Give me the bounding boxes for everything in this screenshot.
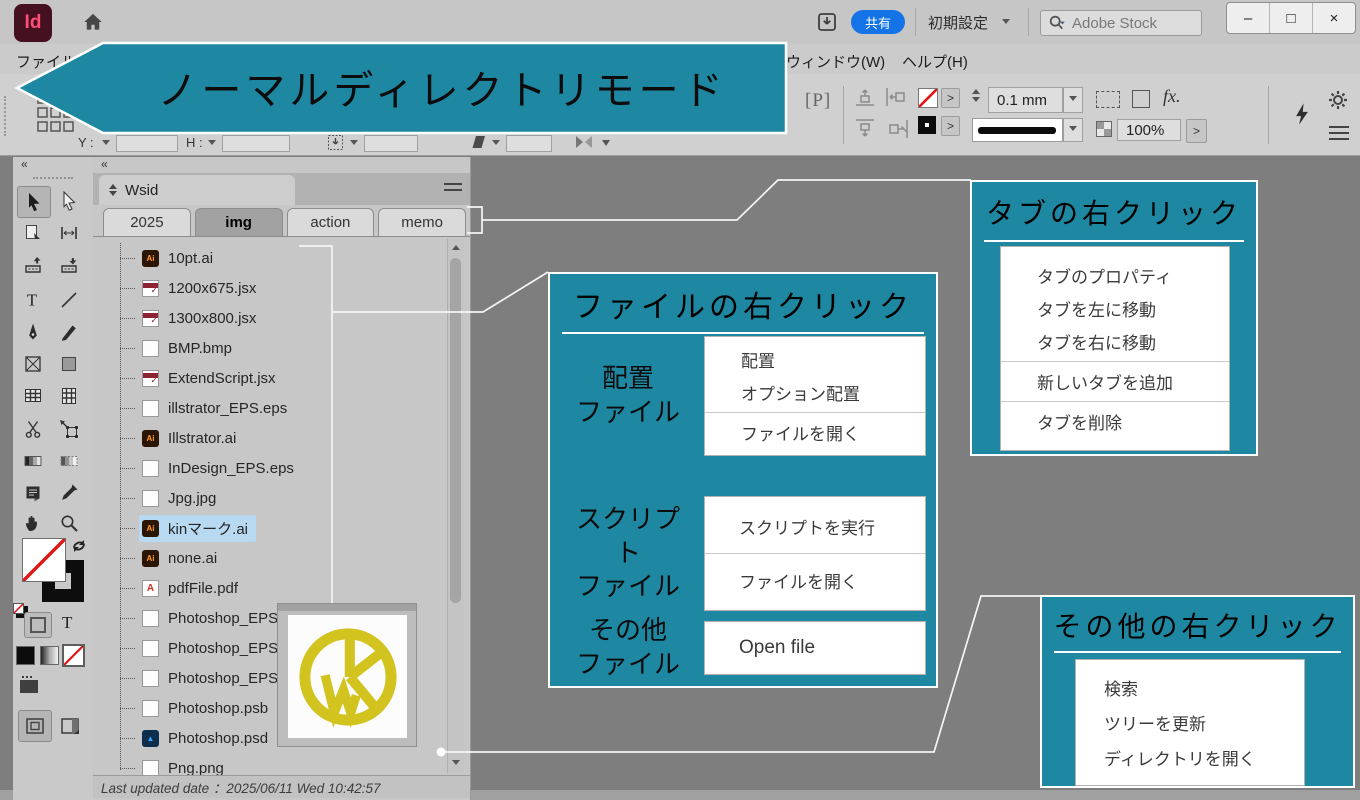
tree-tick [120,378,135,379]
context-menu: タブのプロパティタブを左に移動タブを右に移動新しいタブを追加タブを削除 [1000,246,1230,451]
export-options-icon[interactable] [20,680,38,693]
file-name: Photoshop_EPS.e [168,670,291,687]
file-row[interactable]: InDesign_EPS.eps [120,453,447,483]
note-tool-icon [22,482,44,504]
file-name: Illstrator.ai [168,430,236,447]
stroke-weight-dropdown[interactable] [1063,87,1083,113]
gap-tool[interactable] [53,218,85,248]
doc-file-icon [142,490,159,507]
panel-menu-icon[interactable] [444,183,462,195]
direct-selection-tool[interactable] [53,186,85,216]
zoom-tool[interactable] [53,508,85,538]
panel-title: Wsid [125,182,158,199]
stroke-style-dropdown[interactable] [1063,118,1083,142]
apply-none-button[interactable] [62,644,85,667]
type-tool-icon: T [22,289,44,311]
file-row[interactable]: illstrator_EPS.eps [120,393,447,423]
table-row-tool[interactable] [17,381,49,411]
file-row[interactable]: Ai10pt.ai [120,243,447,273]
doc-file-icon [142,760,159,776]
tree-tick [120,348,135,349]
file-row[interactable]: Aikinマーク.ai [120,513,447,543]
frame-tool-icon [22,353,44,375]
tree-tick [120,738,135,739]
minimize-button[interactable]: – [1227,3,1269,33]
free-transform-tool-icon [58,418,80,440]
callout-title: その他の右クリック [1042,597,1353,645]
callout-title: タブの右クリック [972,182,1256,232]
file-row[interactable]: ApdfFile.pdf [120,573,447,603]
table-column-tool[interactable] [53,381,85,411]
adobe-stock-search-input[interactable]: Adobe Stock [1040,10,1202,36]
gap-tool-icon [58,222,80,244]
panel-tab-bar: Wsid [93,173,470,205]
lightning-icon[interactable] [1294,96,1310,132]
panel-menu-icon[interactable] [1329,126,1349,140]
menu-separator [1001,401,1229,402]
file-name: none.ai [168,550,217,567]
last-updated-text: Last updated date ：2025/06/11 Wed 10:42:… [101,777,380,797]
mode-banner: ノーマルディレクトリモード [0,36,800,140]
context-menu-item: タブのプロパティ [1001,259,1229,292]
context-menu-item: タブを削除 [1001,405,1229,438]
formatting-affects-text-button[interactable]: T [62,613,72,633]
file-name: 10pt.ai [168,250,213,267]
context-menu-item: オプション配置 [705,376,925,409]
file-name: Png.png [168,760,224,776]
file-row[interactable]: ✓1200x675.jsx [120,273,447,303]
opacity-field[interactable]: 100% [1117,119,1181,141]
gear-icon[interactable] [1327,89,1349,111]
title-underline [984,240,1244,242]
file-name: pdfFile.pdf [168,580,238,597]
divider [915,8,916,36]
file-name: ExtendScript.jsx [168,370,276,387]
context-menu-item: 配置 [705,343,925,376]
palette-drag-handle[interactable] [33,177,73,179]
context-menu-item: スクリプトを実行 [705,503,925,550]
selection-tool[interactable] [17,186,51,218]
home-icon [81,10,105,34]
paragraph-style-button[interactable]: [P] [805,90,831,112]
context-menu-item: タブを左に移動 [1001,292,1229,325]
file-name: kinマーク.ai [168,518,248,539]
ai-file-icon: Ai [142,520,159,537]
hand-tool-icon [22,512,44,534]
window-controls: – □ × [1226,2,1356,34]
scissors-tool[interactable] [17,414,49,444]
frame-tool[interactable] [17,349,49,379]
context-menu-item: 新しいタブを追加 [1001,365,1229,398]
jsx-file-icon: ✓ [142,310,159,327]
content-collector-tool[interactable] [17,250,49,280]
type-tool[interactable]: T [17,285,49,315]
tree-tick [120,258,135,259]
divider [843,86,844,144]
menu-separator [705,553,925,554]
search-icon [1048,14,1066,32]
doc-file-icon [142,610,159,627]
divider [1268,86,1269,144]
file-row[interactable]: ✓ExtendScript.jsx [120,363,447,393]
content-placer-tool-icon [58,254,80,276]
swap-fill-stroke-icon[interactable] [71,538,87,554]
tree-tick [120,498,135,499]
tree-tick [120,468,135,469]
opacity-menu-button[interactable]: > [1186,119,1207,143]
align-right-icon[interactable] [884,116,910,142]
chevron-down-icon[interactable] [350,140,358,149]
tree-tick [120,408,135,409]
context-menu: スクリプトを実行ファイルを開く [704,496,926,611]
rectangle-tool-icon [58,353,80,375]
menu-separator [705,412,925,413]
file-name: Photoshop.psd [168,730,268,747]
tree-tick [120,558,135,559]
file-name: Photoshop.psb [168,700,268,717]
share-doc-icon [816,11,838,33]
direct-selection-tool-icon [58,190,80,212]
gradient-swatch-tool-icon [22,450,44,472]
stroke-menu-button[interactable]: > [941,116,960,136]
file-name: Jpg.jpg [168,490,216,507]
other-rightclick-callout: その他の右クリック 検索ツリーを更新ディレクトリを開く [1040,595,1355,788]
gradient-feather-tool-icon [58,450,80,472]
file-row[interactable]: Ainone.ai [120,543,447,573]
divider [1028,8,1029,36]
home-button[interactable] [78,8,108,36]
publish-button[interactable] [816,11,838,38]
status-bar: Last updated date ：2025/06/11 Wed 10:42:… [93,775,470,798]
pdf-file-icon: A [142,580,159,597]
file-row[interactable]: Jpg.jpg [120,483,447,513]
content-collector-tool-icon [22,254,44,276]
line-tool[interactable] [53,285,85,315]
align-bottom-icon[interactable] [852,116,878,142]
doc-file-icon [142,670,159,687]
chevron-down-icon [1002,19,1010,28]
file-row[interactable]: BMP.bmp [120,333,447,363]
doc-file-icon [142,400,159,417]
file-tab-row: 2025imgactionmemo [93,205,470,237]
file-row[interactable]: AiIllstrator.ai [120,423,447,453]
tree-tick [120,588,135,589]
context-menu-item: ファイルを開く [705,416,925,449]
fill-color-swatch[interactable] [22,538,66,582]
align-left-icon[interactable] [884,84,910,110]
search-placeholder: Adobe Stock [1072,15,1157,32]
context-menu-item: ディレクトリを開く [1076,740,1304,775]
callout-section: スクリプトファイルスクリプトを実行ファイルを開く [564,496,926,611]
gradient-swatch-tool[interactable] [17,446,49,476]
tree-tick [120,708,135,709]
doc-file-icon [142,640,159,657]
menu-help[interactable]: ヘルプ(H) [902,51,968,72]
tree-tick [120,618,135,619]
close-button[interactable]: × [1312,3,1355,33]
stroke-weight-stepper[interactable] [972,89,980,106]
tree-tick [120,438,135,439]
context-menu: 検索ツリーを更新ディレクトリを開く [1075,659,1305,786]
context-menu: Open file [704,621,926,675]
doc-file-icon [142,460,159,477]
free-transform-tool[interactable] [53,414,85,444]
context-menu-item: タブを右に移動 [1001,325,1229,358]
wk-logo-image [293,622,403,732]
screen-mode-preview-button[interactable] [58,714,82,738]
scroll-down-button[interactable] [448,756,464,773]
doc-file-icon [142,700,159,717]
page-tool-icon [22,222,44,244]
file-preview-tooltip [277,603,417,747]
ai-file-icon: Ai [142,550,159,567]
file-name: BMP.bmp [168,340,232,357]
chevron-down-icon[interactable] [492,140,500,149]
gradient-feather-tool[interactable] [53,446,85,476]
content-placer-tool[interactable] [53,250,85,280]
file-name: 1200x675.jsx [168,280,256,297]
apply-gradient-button[interactable] [40,646,59,665]
rectangle-tool[interactable] [53,349,85,379]
pencil-tool[interactable] [53,317,85,347]
tab-img[interactable]: img [195,208,283,236]
scrollbar-thumb[interactable] [450,258,461,603]
tab-action[interactable]: action [287,208,375,236]
screen-mode-normal-button[interactable] [18,710,52,742]
file-row[interactable]: Png.png [120,753,447,775]
file-name: 1300x800.jsx [168,310,256,327]
pen-tool[interactable] [17,317,49,347]
pencil-tool-icon [58,321,80,343]
file-type-label: 配置ファイル [564,362,692,430]
tree-tick [120,648,135,649]
jsx-file-icon: ✓ [142,370,159,387]
context-menu-item: 検索 [1076,670,1304,705]
file-type-label: その他ファイル [564,614,692,682]
share-button[interactable]: 共有 [851,10,905,34]
rectangle-icon[interactable] [1132,90,1150,108]
maximize-button[interactable]: □ [1269,3,1312,33]
stroke-swatch[interactable] [918,116,936,134]
page-tool[interactable] [17,218,49,248]
preview-image [288,615,407,738]
selection-tool-icon [23,191,45,213]
jsx-file-icon: ✓ [142,280,159,297]
wsid-panel-tab[interactable]: Wsid [99,175,295,205]
context-menu-item: Open file [705,628,925,668]
collapse-toolbar-button[interactable]: « [13,157,93,173]
scrollbar[interactable] [447,239,464,773]
tab-rightclick-callout: タブの右クリック タブのプロパティタブを左に移動タブを右に移動新しいタブを追加タ… [970,180,1258,456]
tool-palette: « T T [13,157,94,800]
tree-tick [120,768,135,769]
file-row[interactable]: ✓1300x800.jsx [120,303,447,333]
apply-color-button[interactable] [16,646,35,665]
ai-file-icon: Ai [142,430,159,447]
menu-separator [1001,361,1229,362]
title-underline [1054,651,1341,653]
effects-button[interactable]: fx. [1163,86,1181,107]
scissors-tool-icon [22,418,44,440]
banner-label: ノーマルディレクトリモード [112,58,772,116]
callout-section: 配置ファイル配置オプション配置ファイルを開く [564,336,926,456]
stroke-style-field[interactable] [972,118,1063,142]
context-menu: 配置オプション配置ファイルを開く [704,336,926,456]
tree-tick [120,528,135,529]
opacity-checker-icon[interactable] [1096,121,1112,137]
eyedropper-tool[interactable] [53,478,85,508]
svg-text:T: T [27,291,38,310]
file-rightclick-callout: ファイルの右クリック 配置ファイル配置オプション配置ファイルを開くスクリプトファ… [548,272,938,688]
eyedropper-tool-icon [58,482,80,504]
pen-tool-icon [22,321,44,343]
table-row-tool-icon [22,385,44,407]
tree-tick [120,288,135,289]
psd-file-icon: ▲ [142,730,159,747]
tab-memo[interactable]: memo [378,208,466,236]
context-menu-item: ファイルを開く [705,557,925,604]
chevron-down-icon[interactable] [208,140,216,149]
chevron-down-icon[interactable] [102,140,110,149]
callout-section: その他ファイルOpen file [564,614,926,682]
stroke-weight-field[interactable]: 0.1 mm [988,87,1063,113]
tree-tick [120,318,135,319]
file-type-label: スクリプトファイル [564,503,692,604]
context-menu-item: ツリーを更新 [1076,705,1304,740]
workspace-selector[interactable]: 初期設定 [928,12,988,33]
corner-options-icon[interactable] [1096,91,1120,108]
tooltip-title-strip [278,604,416,611]
tab-2025[interactable]: 2025 [103,208,191,236]
callout-title: ファイルの右クリック [550,274,936,326]
align-top-icon[interactable] [852,84,878,110]
zoom-tool-icon [58,512,80,534]
fill-menu-button[interactable]: > [941,88,960,108]
doc-file-icon [142,340,159,357]
note-tool[interactable] [17,478,49,508]
menu-window[interactable]: ウィンドウ(W) [786,51,885,72]
scroll-up-button[interactable] [448,239,464,256]
table-column-tool-icon [58,385,80,407]
title-underline [562,332,924,334]
collapse-panel-button[interactable]: « [93,157,470,173]
formatting-affects-container-button[interactable] [24,612,52,638]
ai-file-icon: Ai [142,250,159,267]
file-name: InDesign_EPS.eps [168,460,294,477]
hand-tool[interactable] [17,508,49,538]
file-name: illstrator_EPS.eps [168,400,287,417]
line-tool-icon [58,289,80,311]
tree-tick [120,678,135,679]
fill-none-swatch[interactable] [918,88,938,108]
panel-collapse-icon [109,180,117,200]
